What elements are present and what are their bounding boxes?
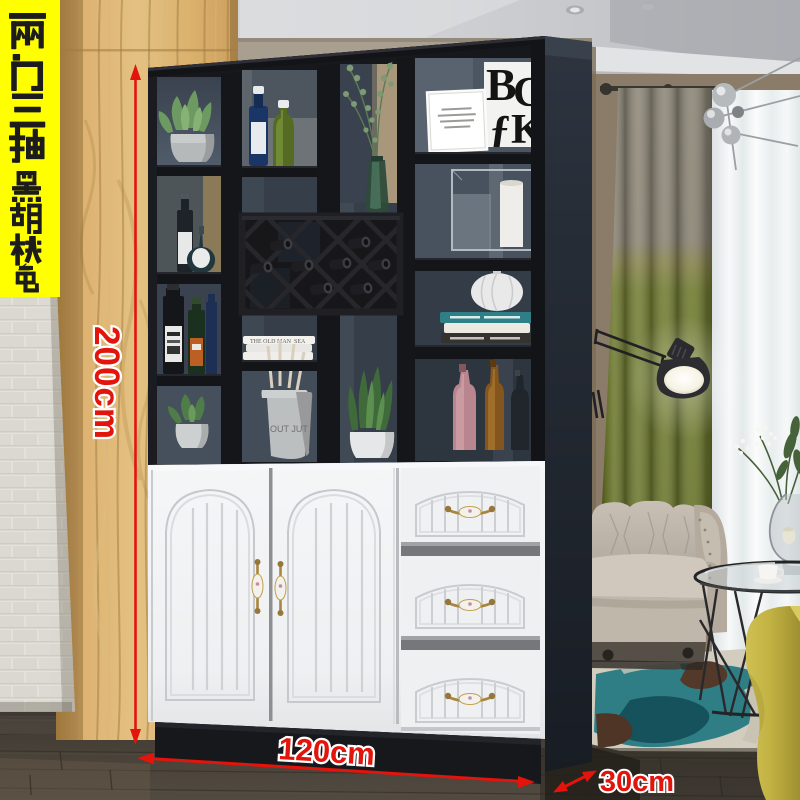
svg-text:THE OLD MAN SEA: THE OLD MAN SEA [250, 339, 306, 345]
svg-text:200cm: 200cm [87, 326, 126, 440]
svg-text:30cm: 30cm [600, 766, 674, 798]
svg-text:OUT JUT: OUT JUT [270, 424, 308, 434]
svg-text:120cm: 120cm [277, 731, 376, 772]
